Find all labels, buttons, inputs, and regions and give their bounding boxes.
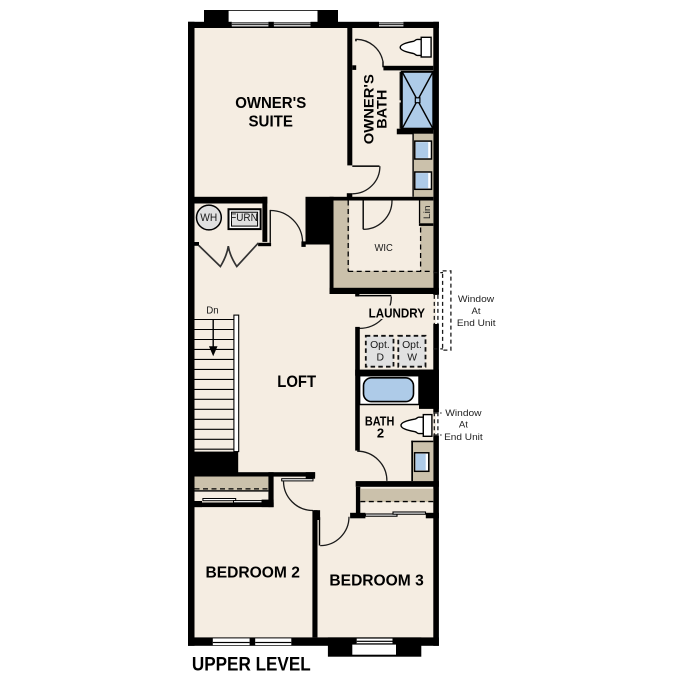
svg-text:End Unit: End Unit [444,432,483,443]
svg-text:W: W [407,352,417,363]
svg-text:BATH: BATH [375,90,391,129]
svg-text:D: D [377,352,385,363]
svg-text:Dn: Dn [206,305,219,317]
svg-text:Opt.: Opt. [370,340,390,351]
svg-text:BEDROOM 3: BEDROOM 3 [329,572,423,589]
svg-text:At: At [472,306,481,317]
svg-text:SUITE: SUITE [249,114,293,131]
svg-text:At: At [459,420,468,431]
svg-text:Lin: Lin [422,205,432,219]
svg-text:FURN: FURN [230,212,258,224]
svg-text:WH: WH [200,212,217,224]
svg-text:UPPER LEVEL: UPPER LEVEL [192,654,311,676]
svg-text:LAUNDRY: LAUNDRY [369,305,426,320]
svg-text:OWNER'S: OWNER'S [235,95,306,112]
svg-text:Window: Window [445,408,481,419]
svg-text:BEDROOM 2: BEDROOM 2 [206,564,300,581]
svg-text:Window: Window [458,294,494,305]
svg-text:Opt.: Opt. [402,340,422,351]
svg-text:2: 2 [377,426,384,441]
svg-text:WIC: WIC [375,243,393,254]
svg-text:End Unit: End Unit [457,318,496,329]
svg-text:LOFT: LOFT [277,373,316,391]
